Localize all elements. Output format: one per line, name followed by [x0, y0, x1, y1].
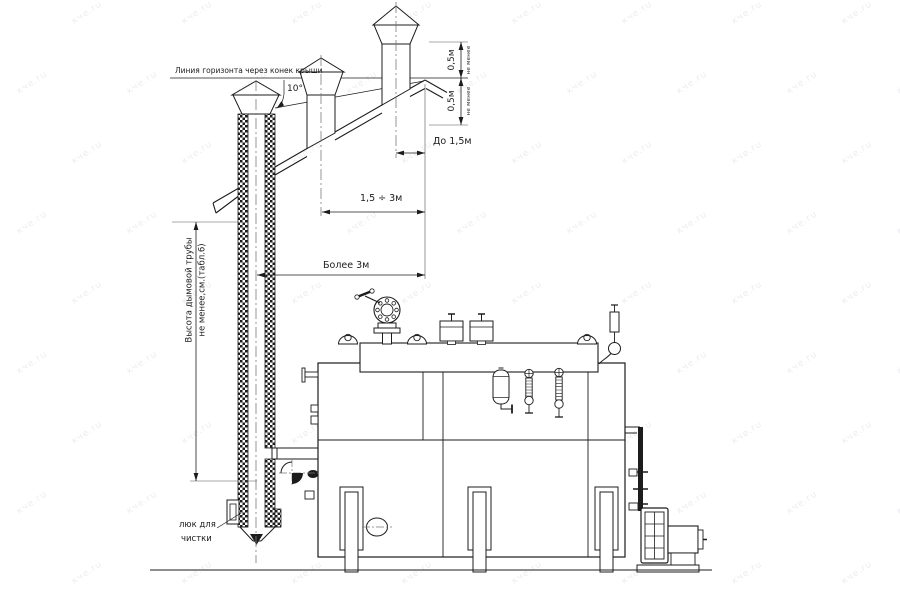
lifting-lug: [339, 334, 358, 344]
boiler: [302, 343, 625, 572]
chimney-height-label: Высота дымовой трубы не менее,см.(табл.6…: [184, 202, 209, 378]
boiler-leg: [595, 487, 618, 572]
technical-drawing: кче.ruкче.ruкче.ruкче.ruкче.ruкче.ruкче.…: [0, 0, 900, 600]
dim-label-more-3m: Более 3м: [323, 260, 369, 271]
chimney-height-label-line2: не менее,см.(табл.6): [196, 202, 209, 378]
lifting-lug: [578, 334, 597, 344]
fan-motor: [668, 526, 698, 553]
chimney-wall-right-upper: [265, 114, 275, 448]
dim-ridge-lower-qualifier: не менее: [466, 86, 472, 115]
hatch-label-line1: люк для: [179, 520, 216, 530]
drain-nozzle: [308, 470, 319, 478]
dim-ridge-lower-value: 0,5м: [447, 90, 457, 111]
dim-ridge-upper-value: 0,5м: [447, 49, 457, 70]
chimney-height-label-line1: Высота дымовой трубы: [184, 202, 197, 378]
damper: [279, 459, 320, 487]
angle-label: 10°: [287, 84, 303, 94]
dim-ridge-upper-qualifier: не менее: [466, 45, 472, 74]
blower-fan: [637, 508, 707, 572]
feed-pipe: [625, 427, 648, 511]
flue-duct: [272, 448, 318, 459]
dim-label-upto-1-5m: До 1,5м: [433, 136, 472, 147]
fan-base: [637, 565, 699, 572]
chimney-main: [227, 81, 281, 545]
chimney-funnel: [238, 527, 281, 545]
safety-valve: [470, 314, 493, 345]
pressure-gauge: [599, 305, 621, 364]
dim-label-1-5-to-3m: 1,5 ÷ 3м: [360, 193, 402, 204]
safety-valve: [440, 314, 463, 345]
steam-valve: [355, 289, 400, 344]
boiler-drum: [360, 343, 598, 372]
boiler-leg: [468, 487, 491, 572]
side-fittings: [302, 368, 319, 499]
chimney-wall-left: [238, 114, 248, 527]
horizon-label: Линия горизонта через конек крыши: [175, 66, 322, 75]
chimney-wall-right-lower: [265, 459, 275, 527]
hatch-label-line2: чистки: [181, 534, 212, 544]
lifting-lug: [408, 334, 427, 344]
boiler-leg: [340, 487, 363, 572]
